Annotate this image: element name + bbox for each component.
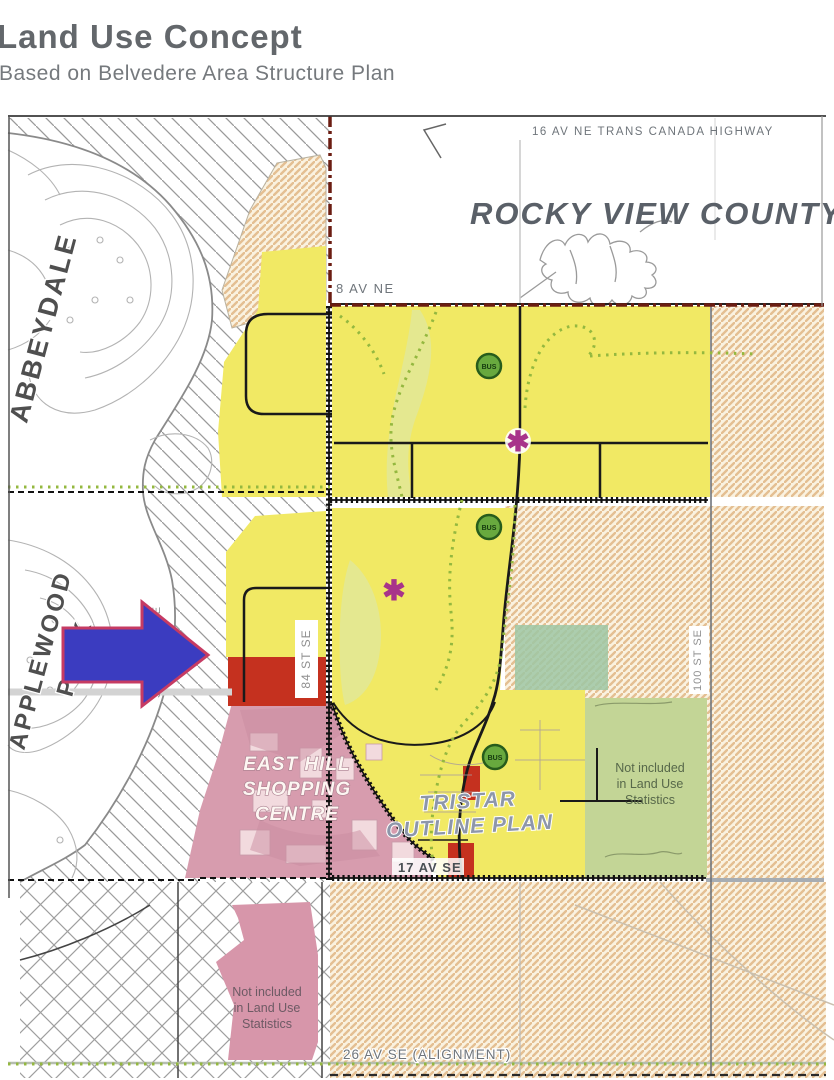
not-included-line2: in Land Use — [234, 1001, 301, 1015]
abbeydale-label: ABBEYDALE — [4, 230, 83, 426]
bus-stop-mid: BUS — [477, 515, 501, 539]
not-included-line3: Statistics — [242, 1017, 292, 1031]
east-hill-label: EAST HILL SHOPPING CENTRE — [243, 754, 351, 825]
not-included-line3: Statistics — [625, 793, 675, 807]
bus-stop-south: BUS — [483, 745, 507, 769]
green-not-included-label: Not included in Land Use Statistics — [615, 761, 685, 807]
8av-label: 8 AV NE — [336, 281, 395, 296]
not-included-line2: in Land Use — [617, 777, 684, 791]
not-included-line1: Not included — [615, 761, 685, 775]
84st-label: 84 ST SE — [299, 629, 313, 688]
rural-acreage-doodles — [520, 220, 672, 306]
county-label: ROCKY VIEW COUNTY — [470, 196, 834, 231]
highway-label: 16 AV NE TRANS CANADA HIGHWAY — [532, 126, 774, 138]
bus-label: BUS — [482, 364, 497, 371]
bus-stop-north: BUS — [477, 354, 501, 378]
scanned-land-use-map-page: Land Use Concept Based on Belvedere Area… — [0, 0, 834, 1080]
county-flag-mark — [424, 124, 446, 158]
east-hill-line1: EAST HILL — [243, 754, 350, 775]
east-hill-line3: CENTRE — [255, 804, 339, 825]
land-use-concept-map: BUS BUS BUS ✱ ✱ 16 AV NE TRANS CANADA HI… — [0, 0, 834, 1080]
interchange-asterisk-west: ✱ — [382, 575, 405, 606]
bus-label: BUS — [488, 755, 503, 762]
100st-label: 100 ST SE — [692, 629, 704, 691]
east-hill-line2: SHOPPING — [243, 779, 351, 800]
17av-label: 17 AV SE — [398, 860, 462, 875]
pink-not-included-label: Not included in Land Use Statistics — [232, 985, 302, 1031]
interchange-asterisk-east: ✱ — [506, 426, 529, 457]
not-included-line1: Not included — [232, 985, 302, 999]
26av-label: 26 AV SE (ALIGNMENT) — [343, 1047, 511, 1062]
county-tan-area-ne — [711, 306, 824, 497]
teal-green-patch — [515, 625, 608, 690]
bus-label: BUS — [482, 525, 497, 532]
